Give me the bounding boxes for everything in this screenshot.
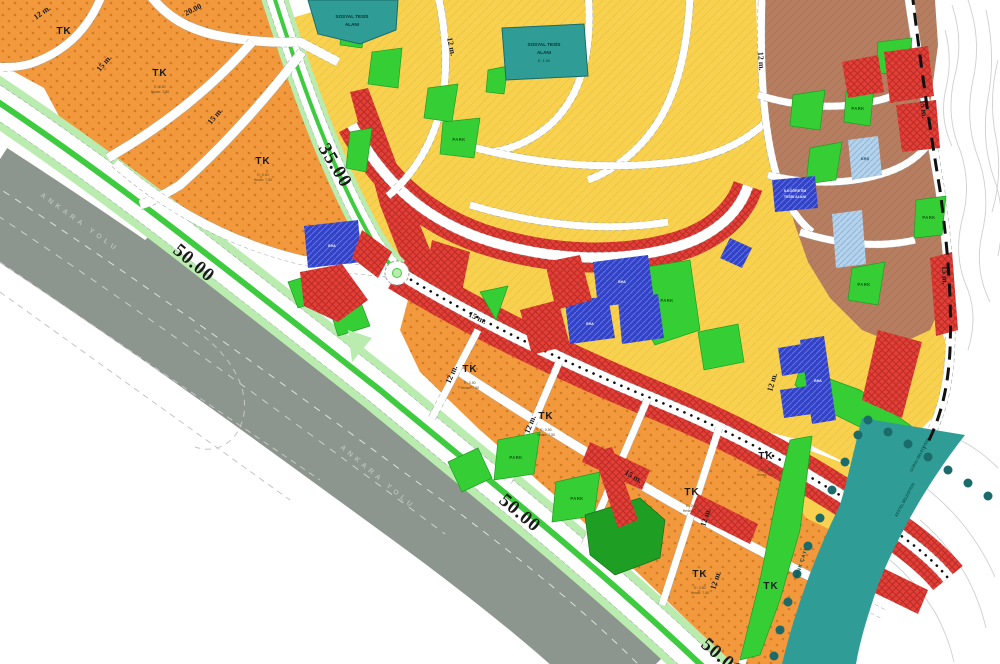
svg-text:Hmax: 7.50: Hmax: 7.50	[683, 509, 701, 513]
social-facility-2-label: ALANI	[345, 22, 359, 27]
svg-text:E: 0.50: E: 0.50	[257, 173, 268, 177]
svg-text:E: 0.50: E: 0.50	[154, 85, 165, 89]
svg-text:Hmax: 7.50: Hmax: 7.50	[461, 386, 479, 390]
social-facility-2-label: SOSYAL TESİS	[336, 13, 369, 19]
tk-parcel-label: TK	[763, 581, 778, 592]
park-label: PARK	[851, 106, 864, 111]
school-label: İLKÖĞRETİM	[784, 188, 807, 193]
svg-text:Hmax: 7.50: Hmax: 7.50	[537, 433, 555, 437]
svg-text:E: 0.50: E: 0.50	[694, 586, 705, 590]
park-label: PARK	[509, 455, 522, 460]
svg-text:TK: TK	[462, 364, 477, 375]
public-block-label: BHA	[814, 379, 822, 383]
svg-text:TK: TK	[758, 451, 773, 462]
creche-label: KRŞ	[861, 156, 870, 161]
park-label: PARK	[452, 137, 465, 142]
park-label: PARK	[922, 215, 935, 220]
svg-text:E: 0.50: E: 0.50	[686, 504, 697, 508]
svg-text:Hmax: 7.50: Hmax: 7.50	[151, 90, 169, 94]
tk-parcel-label: TK	[56, 26, 71, 37]
road-label-15: 15 m.	[940, 266, 950, 285]
park-label: PARK	[857, 282, 870, 287]
school-label: TESİS ALANI	[784, 195, 806, 199]
map-svg: ANKARA YOLU ANKARA YOLU	[0, 0, 1000, 664]
zoning-map-canvas: ANKARA YOLU ANKARA YOLU	[0, 0, 1000, 664]
park-label: PARK	[660, 298, 673, 303]
svg-text:E: 0.50: E: 0.50	[540, 428, 551, 432]
social-facility-label: SOSYAL TESİS	[528, 41, 561, 47]
svg-text:E: 0.50: E: 0.50	[760, 468, 771, 472]
public-block	[780, 386, 812, 418]
public-block	[618, 294, 664, 344]
svg-text:E: 0.50: E: 0.50	[464, 381, 475, 385]
svg-text:TK: TK	[56, 26, 71, 37]
public-block	[778, 344, 806, 376]
svg-text:TK: TK	[152, 68, 167, 79]
road-label-12: 12 m.	[756, 52, 766, 71]
creche-block-2	[832, 210, 866, 268]
svg-text:Hmax: 7.50: Hmax: 7.50	[254, 178, 272, 182]
svg-text:TK: TK	[763, 581, 778, 592]
svg-text:TK: TK	[684, 487, 699, 498]
public-block-label: BHA	[618, 280, 626, 284]
svg-text:Hmax: 7.50: Hmax: 7.50	[691, 591, 709, 595]
school-block	[772, 176, 818, 212]
park-label: PARK	[570, 496, 583, 501]
svg-text:TK: TK	[692, 569, 707, 580]
svg-text:Hmax: 7.50: Hmax: 7.50	[757, 473, 775, 477]
roundabout	[385, 261, 409, 285]
public-block-label: BHA	[586, 322, 594, 326]
svg-text:TK: TK	[255, 156, 270, 167]
social-facility-label: ALANI	[537, 50, 551, 55]
public-block-label: BHA	[328, 244, 336, 248]
svg-text:TK: TK	[538, 411, 553, 422]
social-facility-label: E: 1.00	[538, 59, 550, 63]
